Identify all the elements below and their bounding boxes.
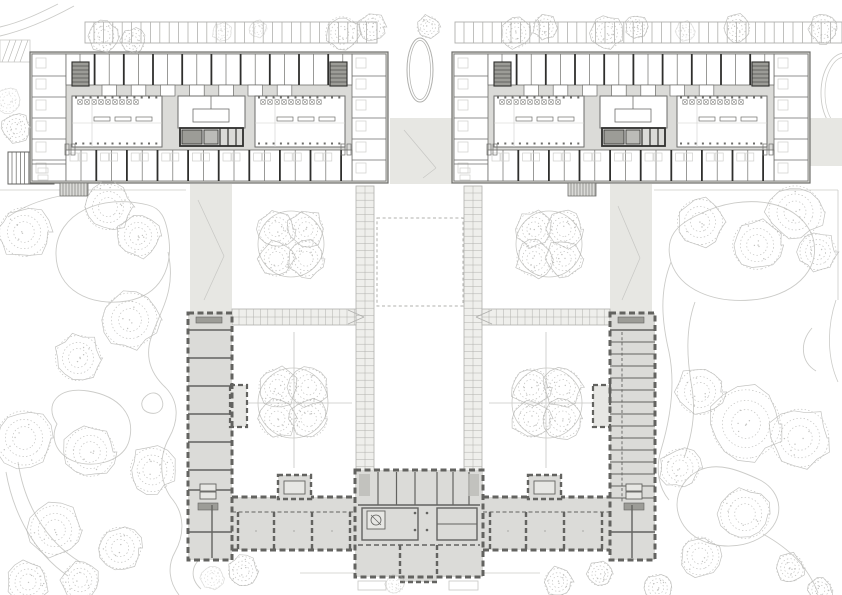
connector-path-left (190, 184, 232, 314)
plaza-between-slabs (390, 118, 452, 184)
slab-building-left (30, 52, 388, 183)
oval-pond (407, 38, 433, 102)
central-pavilion (355, 470, 483, 590)
site-plan-svg (0, 0, 842, 595)
site-plan-canvas (0, 0, 842, 595)
slab-building-right (452, 52, 810, 183)
connector-path-right (610, 184, 652, 314)
